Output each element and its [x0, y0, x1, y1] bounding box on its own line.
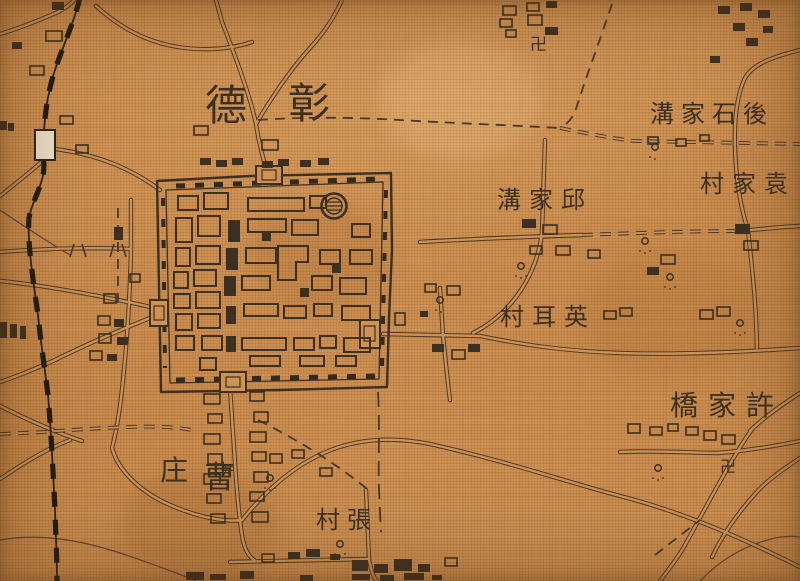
label-zhangcun: 村張: [316, 506, 378, 534]
label-qiujiagou: 溝家邱: [497, 186, 593, 214]
historical-map-canvas: 德 彰 溝家石後 村家袁 溝家邱 村耳英 橋家許 庄 曹 村張 卍 卍 井: [0, 0, 800, 581]
label-houshijiagou: 溝家石後: [650, 100, 774, 128]
label-yingercun: 村耳英: [500, 303, 596, 331]
city-gate-north: [256, 166, 282, 184]
label-xujiaqiao: 橋家許: [670, 389, 784, 422]
road-network: [0, 0, 800, 581]
walled-city: [150, 166, 392, 392]
label-zhangde-de: 德: [205, 81, 247, 130]
place-labels: 德 彰 溝家石後 村家袁 溝家邱 村耳英 橋家許 庄 曹 村張: [160, 79, 796, 534]
village-houses-outlined: [30, 3, 758, 566]
dashed-path-network: [0, 4, 800, 555]
circular-landmark-symbol: [322, 194, 347, 219]
label-yuanjiacun: 村家袁: [700, 170, 796, 198]
city-blocks-outlined: [174, 193, 372, 370]
railway-station-symbol: [35, 130, 55, 160]
map-drawing: 德 彰 溝家石後 村家袁 溝家邱 村耳英 橋家許 庄 曹 村張 卍 卍 井: [0, 0, 800, 581]
city-gate-south: [220, 372, 246, 392]
well-glyph-icon: 井: [222, 463, 234, 477]
yamen-block: [278, 246, 308, 280]
label-caozhuang-zhuang: 庄: [160, 454, 188, 487]
temple-swastika-icon: 卍: [720, 457, 736, 476]
label-zhangde-zhang: 彰: [288, 79, 330, 128]
temple-swastika-icon: 卍: [530, 35, 547, 55]
city-gate-west: [150, 300, 168, 326]
village-houses-filled: [0, 1, 773, 581]
